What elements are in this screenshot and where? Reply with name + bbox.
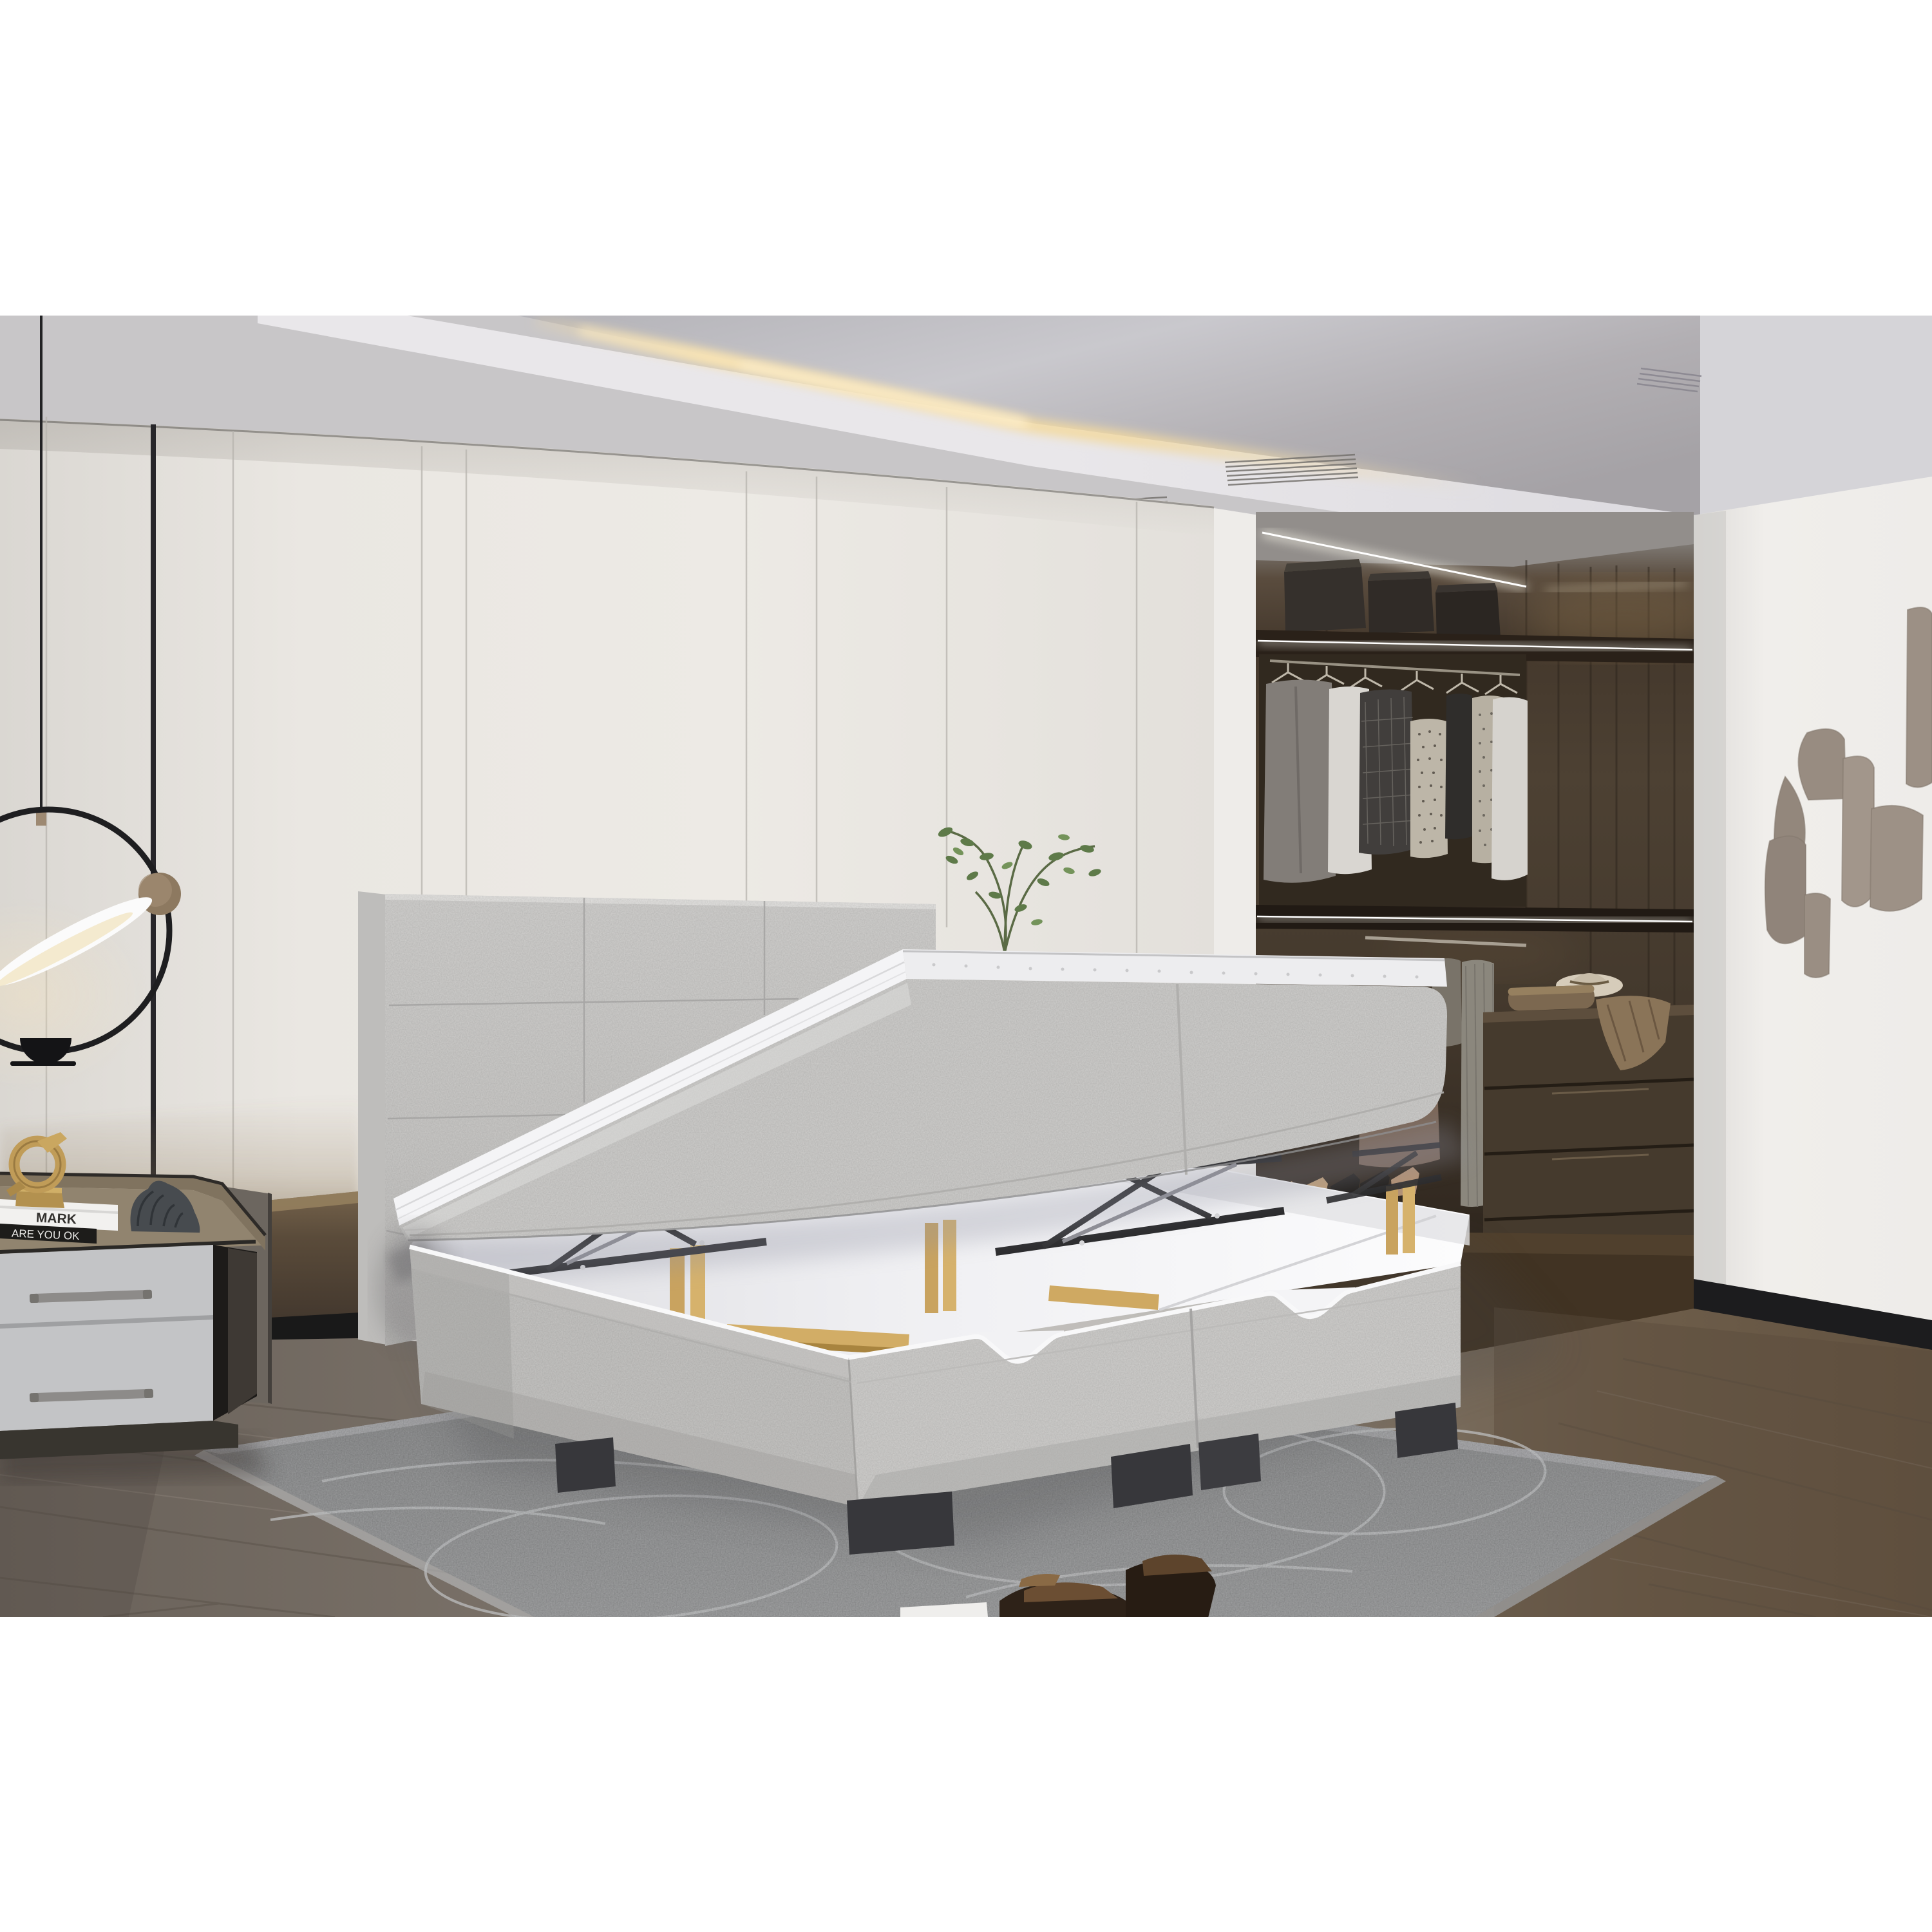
svg-text:MARK: MARK: [35, 1211, 77, 1227]
